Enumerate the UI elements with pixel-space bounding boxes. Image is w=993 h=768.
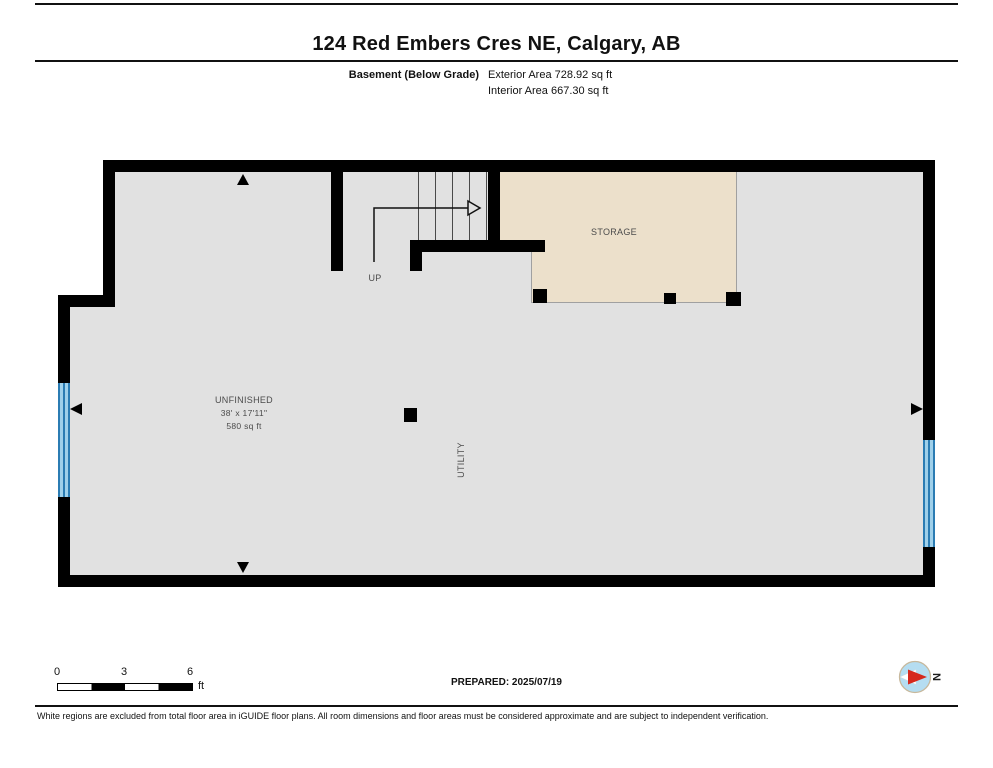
extent-arrow-left-icon bbox=[70, 403, 82, 415]
window-left bbox=[58, 383, 70, 497]
extent-arrow-up-icon bbox=[237, 174, 249, 185]
support-post bbox=[533, 289, 547, 303]
title-rule bbox=[35, 60, 958, 62]
storage-label: STORAGE bbox=[564, 227, 664, 237]
unfinished-area: 580 sq ft bbox=[164, 420, 324, 433]
extent-arrow-right-icon bbox=[911, 403, 923, 415]
scale-bar bbox=[57, 683, 193, 691]
top-rule bbox=[35, 3, 958, 5]
support-post bbox=[404, 408, 417, 422]
scale-tick-6: 6 bbox=[182, 666, 198, 678]
wall-top bbox=[103, 160, 935, 172]
utility-label: UTILITY bbox=[448, 435, 474, 485]
floor-plan-page: 124 Red Embers Cres NE, Calgary, AB Base… bbox=[0, 0, 993, 768]
disclaimer-text: White regions are excluded from total fl… bbox=[37, 711, 957, 721]
interior-area-text: Interior Area 667.30 sq ft bbox=[488, 85, 608, 97]
storage-room-notch bbox=[500, 252, 531, 303]
wall-bottom bbox=[58, 575, 935, 587]
extent-arrow-down-icon bbox=[237, 562, 249, 573]
compass-north-label: N bbox=[930, 673, 942, 681]
prepared-date: PREPARED: 2025/07/19 bbox=[451, 677, 562, 688]
stair-direction-arrow-icon bbox=[320, 165, 500, 285]
support-post bbox=[726, 292, 741, 306]
storage-boundary-right bbox=[736, 172, 737, 303]
footer-rule bbox=[35, 705, 958, 707]
floor-area-left bbox=[70, 307, 115, 575]
exterior-area-text: Exterior Area 728.92 sq ft bbox=[488, 69, 612, 81]
window-right bbox=[923, 440, 935, 547]
support-post bbox=[664, 293, 676, 304]
wall-left-upper bbox=[103, 160, 115, 307]
unfinished-dimensions: 38' x 17'11" bbox=[164, 407, 324, 420]
scale-tick-3: 3 bbox=[116, 666, 132, 678]
scale-unit-label: ft bbox=[198, 680, 204, 692]
stairs-up-label: UP bbox=[360, 273, 390, 283]
floor-label: Basement (Below Grade) bbox=[259, 69, 479, 81]
storage-boundary-bottom bbox=[531, 302, 737, 303]
page-title: 124 Red Embers Cres NE, Calgary, AB bbox=[0, 33, 993, 56]
scale-tick-0: 0 bbox=[49, 666, 65, 678]
unfinished-label: UNFINISHED bbox=[164, 394, 324, 407]
storage-room-fill bbox=[500, 172, 737, 303]
compass-icon: N bbox=[893, 655, 955, 701]
storage-boundary-left bbox=[531, 252, 532, 303]
unfinished-label-block: UNFINISHED 38' x 17'11" 580 sq ft bbox=[164, 394, 324, 433]
